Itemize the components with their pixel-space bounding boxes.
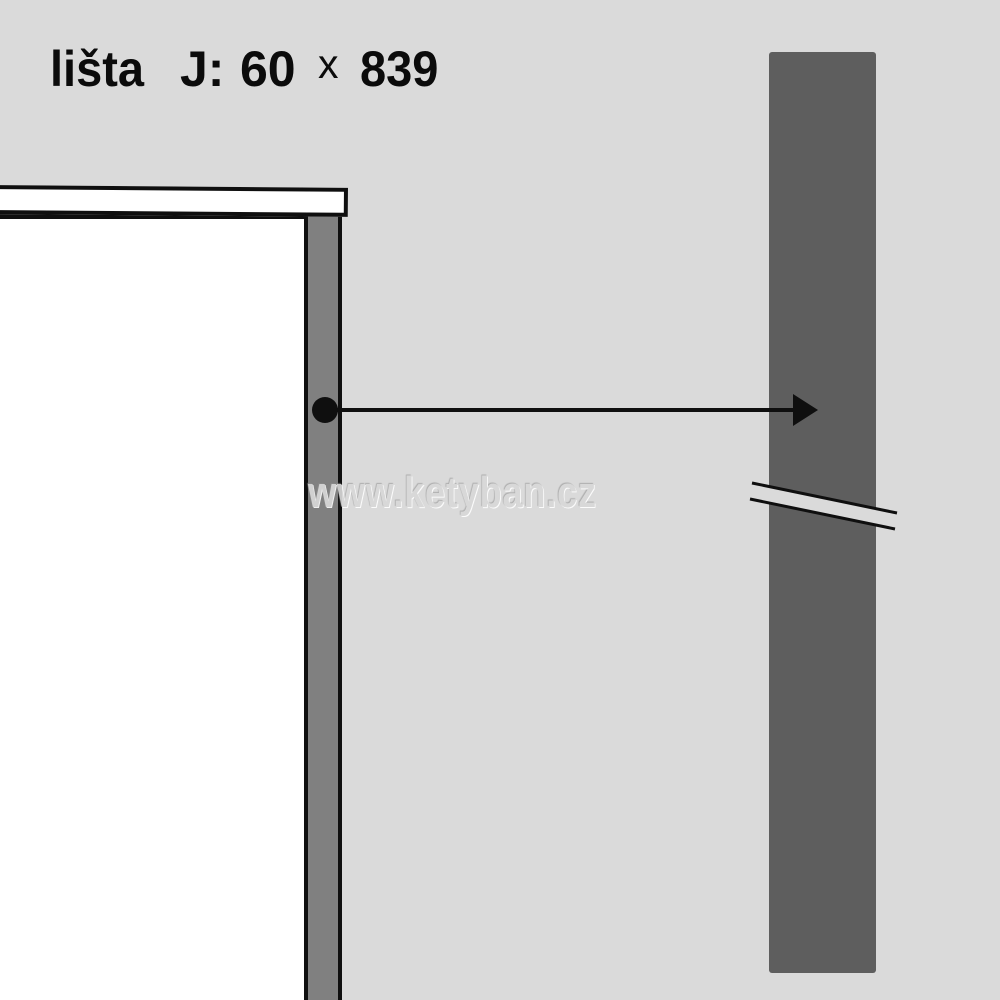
- j-strip-cross-section: [304, 213, 342, 1000]
- profile-bar: [769, 52, 876, 973]
- watermark-text: www.ketyban.cz: [308, 471, 597, 515]
- title-length-value: 839: [360, 44, 438, 94]
- title-product-name: lišta: [50, 44, 144, 94]
- cabinet-top-board: [0, 185, 348, 217]
- title-width-value: 60: [240, 44, 296, 94]
- diagram-canvas: lišta J: 60 x 839 www.ketyban.cz: [0, 0, 1000, 1000]
- title-times-sign: x: [318, 44, 339, 85]
- title-variant-label: J:: [180, 44, 224, 94]
- cabinet-side-panel: [0, 214, 308, 1000]
